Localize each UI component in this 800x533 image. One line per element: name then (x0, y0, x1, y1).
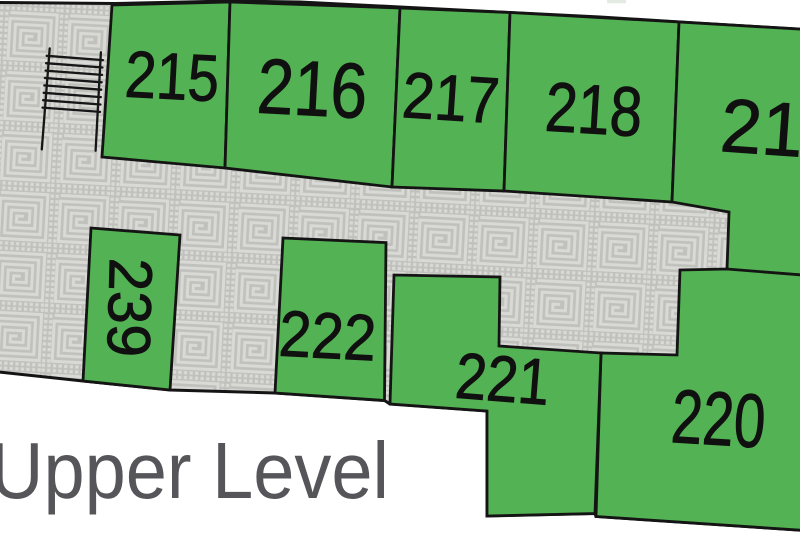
svg-text:220: 220 (669, 374, 768, 465)
svg-text:221: 221 (453, 339, 552, 419)
svg-text:217: 217 (400, 58, 502, 137)
svg-text:222: 222 (277, 297, 378, 375)
svg-text:Upper Level: Upper Level (0, 426, 389, 515)
svg-text:239: 239 (94, 257, 165, 358)
svg-text:215: 215 (123, 37, 221, 116)
svg-text:216: 216 (255, 42, 369, 136)
svg-text:218: 218 (543, 68, 645, 152)
svg-text:219: 219 (718, 83, 800, 176)
